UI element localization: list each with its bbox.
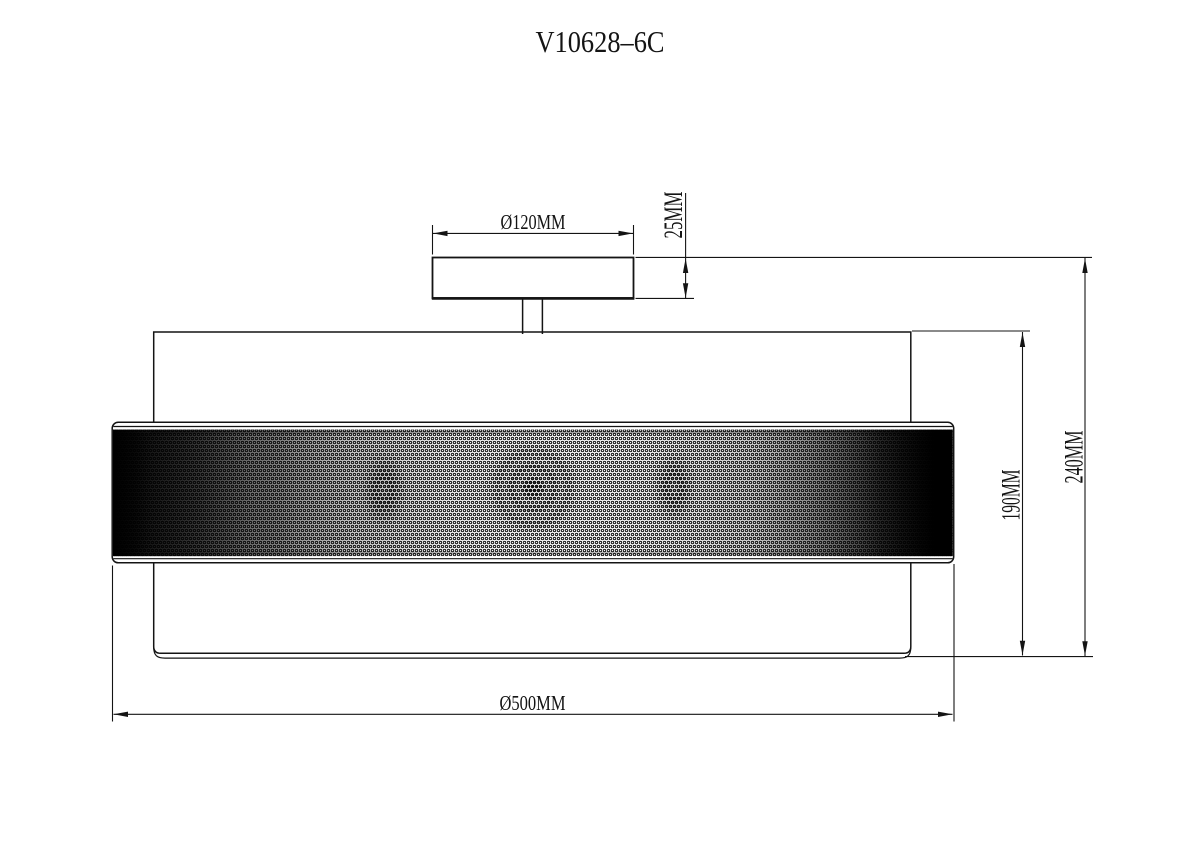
svg-text:25MM: 25MM bbox=[659, 192, 688, 239]
svg-text:Ø500MM: Ø500MM bbox=[500, 691, 566, 715]
svg-text:Ø120MM: Ø120MM bbox=[501, 210, 566, 234]
svg-text:190MM: 190MM bbox=[997, 470, 1026, 521]
svg-text:240MM: 240MM bbox=[1060, 431, 1089, 484]
svg-text:V10628–6C: V10628–6C bbox=[536, 24, 665, 59]
